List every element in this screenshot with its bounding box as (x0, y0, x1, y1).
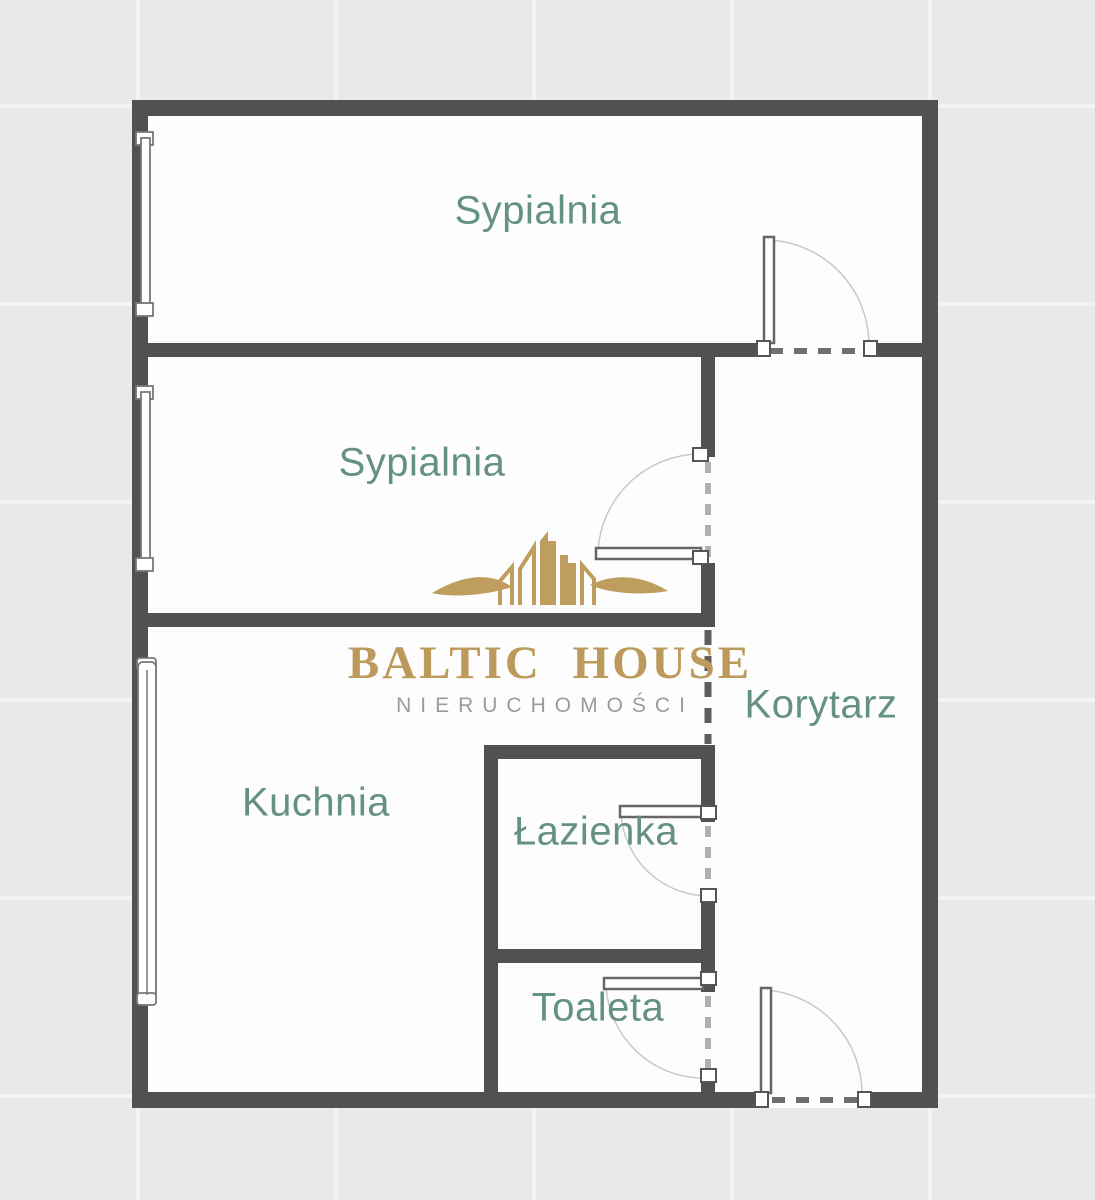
room-label-kuchnia: Kuchnia (242, 781, 390, 826)
door-jamb (858, 1092, 871, 1107)
window-body (141, 138, 150, 310)
wall-segment-bathroom-top (484, 745, 715, 759)
room-label-sypialnia-1: Sypialnia (455, 189, 622, 234)
door-jamb (701, 1069, 716, 1082)
room-label-toaleta: Toaleta (532, 986, 664, 1031)
room-label-sypialnia-2: Sypialnia (339, 441, 506, 486)
wall-segment-bathroom-left (484, 745, 498, 1092)
wall-segment-outer-bottom-left (132, 1092, 756, 1108)
wall-segment-bedroom1-bottom-left (132, 343, 756, 357)
window-body (141, 392, 150, 564)
door-jamb (864, 341, 877, 356)
wall-segment-bathroom-toilet-divider (484, 949, 715, 963)
wall-segment-outer-bottom-right (868, 1092, 938, 1108)
wall-segment-outer-right (922, 100, 938, 1108)
room-label-korytarz: Korytarz (745, 683, 898, 728)
door-jamb (693, 551, 708, 564)
wall-segment-bedroom2-right-upper (701, 343, 715, 457)
door-jamb (701, 806, 716, 819)
window-cap (136, 558, 153, 571)
door-jamb (701, 889, 716, 902)
door-jamb (701, 972, 716, 985)
floorplan-canvas: Sypialnia Sypialnia Korytarz Kuchnia Łaz… (0, 0, 1095, 1200)
wall-segment-outer-top (132, 100, 938, 116)
window-kuchnia-icon (137, 658, 156, 1005)
door-jamb (693, 448, 708, 461)
door-jamb (755, 1092, 768, 1107)
wall-segment-bedroom2-bottom (132, 613, 715, 627)
door-leaf (761, 988, 771, 1093)
window-cap (136, 303, 153, 316)
wall-segment-bedroom1-bottom-right (868, 343, 938, 357)
room-label-lazienka: Łazienka (514, 810, 678, 855)
door-leaf (764, 237, 774, 343)
door-leaf (596, 548, 701, 559)
door-jamb (757, 341, 770, 356)
